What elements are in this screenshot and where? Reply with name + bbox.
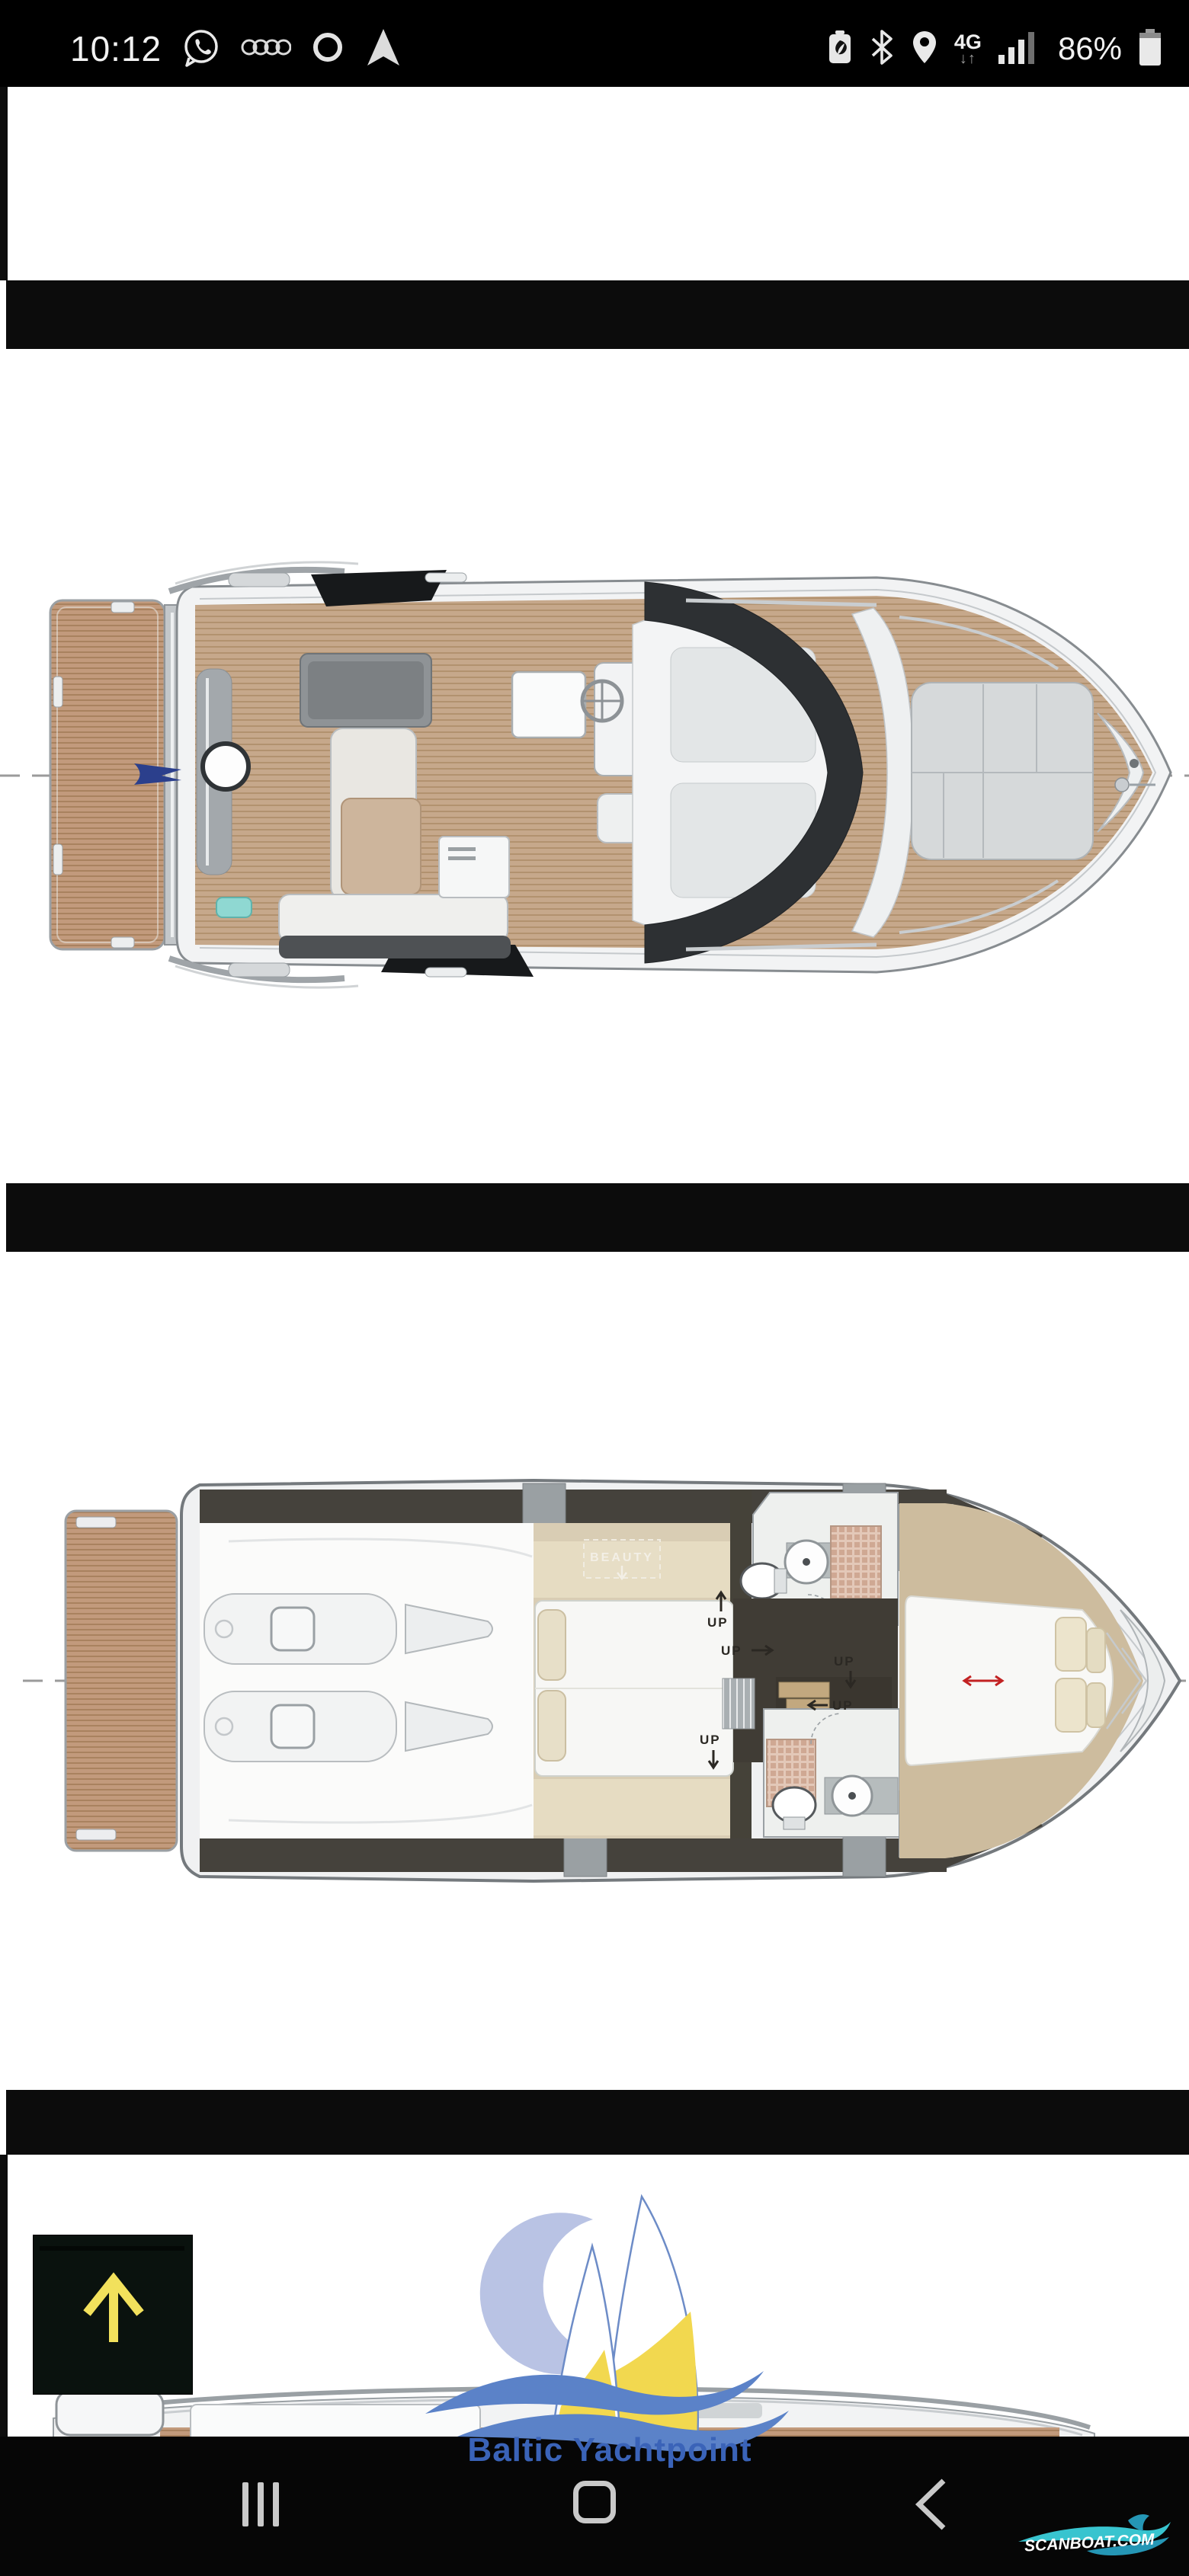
svg-text:UP: UP xyxy=(700,1733,721,1747)
svg-text:UP: UP xyxy=(721,1643,742,1658)
home-button[interactable] xyxy=(573,2481,616,2523)
teal-cushion xyxy=(216,898,252,917)
scroll-to-top-button[interactable] xyxy=(33,2235,193,2395)
signal-bars-icon xyxy=(998,30,1041,68)
lower-deck-plan-image[interactable]: BEAUTY xyxy=(0,1252,1189,2090)
data-arrows-icon: ↓↑ xyxy=(960,51,976,66)
aft-cabin-bed xyxy=(535,1601,733,1776)
divider-band xyxy=(6,280,1189,349)
svg-text:UP: UP xyxy=(834,1654,855,1669)
scanboat-watermark: SCANBOAT.COM xyxy=(1014,2507,1181,2572)
chaise-cushion xyxy=(341,798,421,894)
back-button[interactable] xyxy=(912,2478,948,2535)
beauty-area-label: BEAUTY xyxy=(584,1540,660,1579)
divider-band xyxy=(6,2090,1189,2155)
android-auto-icon xyxy=(364,27,402,71)
swim-platform xyxy=(66,1511,177,1851)
battery-percent: 86% xyxy=(1058,30,1122,67)
whatsapp-icon xyxy=(181,27,221,71)
bow-sunpad xyxy=(912,683,1093,859)
deck-plan-section xyxy=(0,349,1189,1183)
engine-room-floor xyxy=(200,1523,535,1838)
circle-app-icon xyxy=(311,30,345,68)
arrow-up-icon xyxy=(34,2235,194,2395)
bathroom-forward-starboard xyxy=(764,1709,899,1837)
galley-cabinet xyxy=(439,837,509,898)
clock: 10:12 xyxy=(70,28,162,69)
network-type-label: 4G xyxy=(954,32,982,53)
svg-text:BEAUTY: BEAUTY xyxy=(590,1551,654,1564)
page-left-edge xyxy=(0,87,8,280)
network-4g-icon: 4G ↓↑ xyxy=(954,32,982,66)
location-icon xyxy=(912,30,937,69)
aft-sofa xyxy=(279,894,508,942)
status-bar: 10:12 xyxy=(0,0,1189,87)
battery-saver-icon xyxy=(828,30,852,68)
divider-band xyxy=(6,1183,1189,1252)
bluetooth-icon xyxy=(869,30,895,69)
battery-icon xyxy=(1139,29,1162,69)
brand-mark xyxy=(1115,778,1129,792)
cockpit-table xyxy=(512,672,585,738)
blank-content-gap xyxy=(0,87,1189,280)
aft-table xyxy=(203,744,248,789)
audi-rings-icon xyxy=(241,34,291,64)
lower-deck-section: BEAUTY xyxy=(0,1252,1189,2090)
recents-button[interactable] xyxy=(242,2482,284,2528)
svg-text:UP: UP xyxy=(707,1615,729,1630)
hull-tip-fragment xyxy=(56,2391,163,2435)
android-navigation-bar xyxy=(0,2437,1189,2576)
svg-text:UP: UP xyxy=(832,1698,854,1713)
deck-top-view-image[interactable] xyxy=(0,349,1189,1183)
chevron-left-icon xyxy=(912,2478,948,2531)
phone-screen: 10:12 xyxy=(0,0,1189,2576)
